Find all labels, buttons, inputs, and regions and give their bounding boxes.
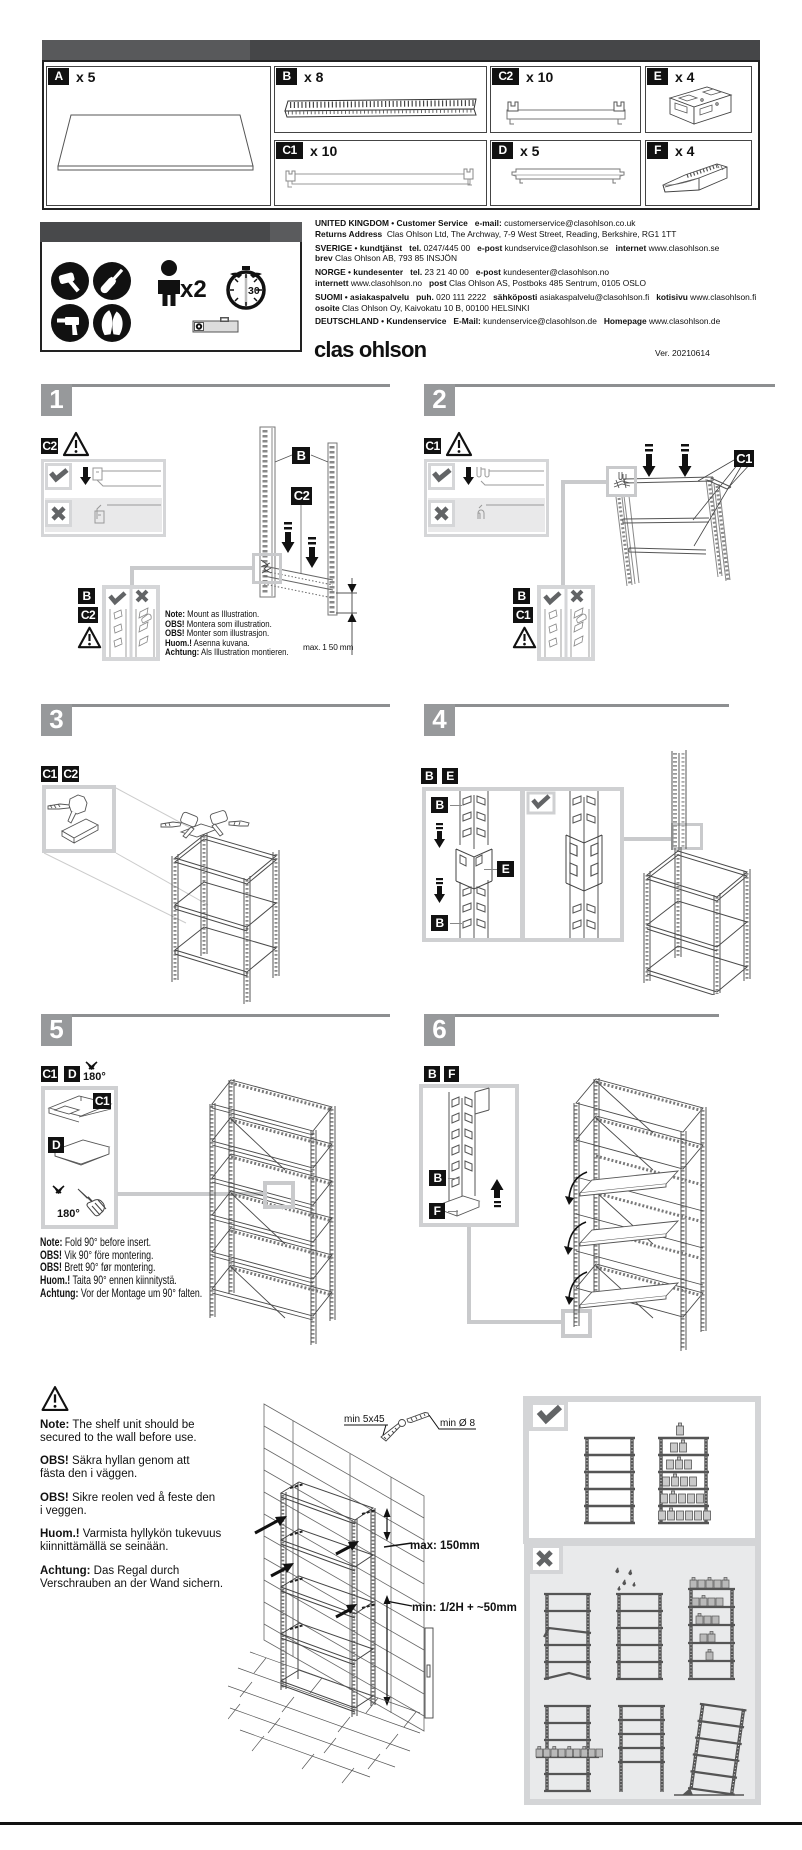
svg-text:min Ø 8: min Ø 8: [440, 1418, 475, 1429]
svg-text:min 5x45: min 5x45: [344, 1414, 385, 1425]
svg-text:30: 30: [248, 285, 260, 297]
